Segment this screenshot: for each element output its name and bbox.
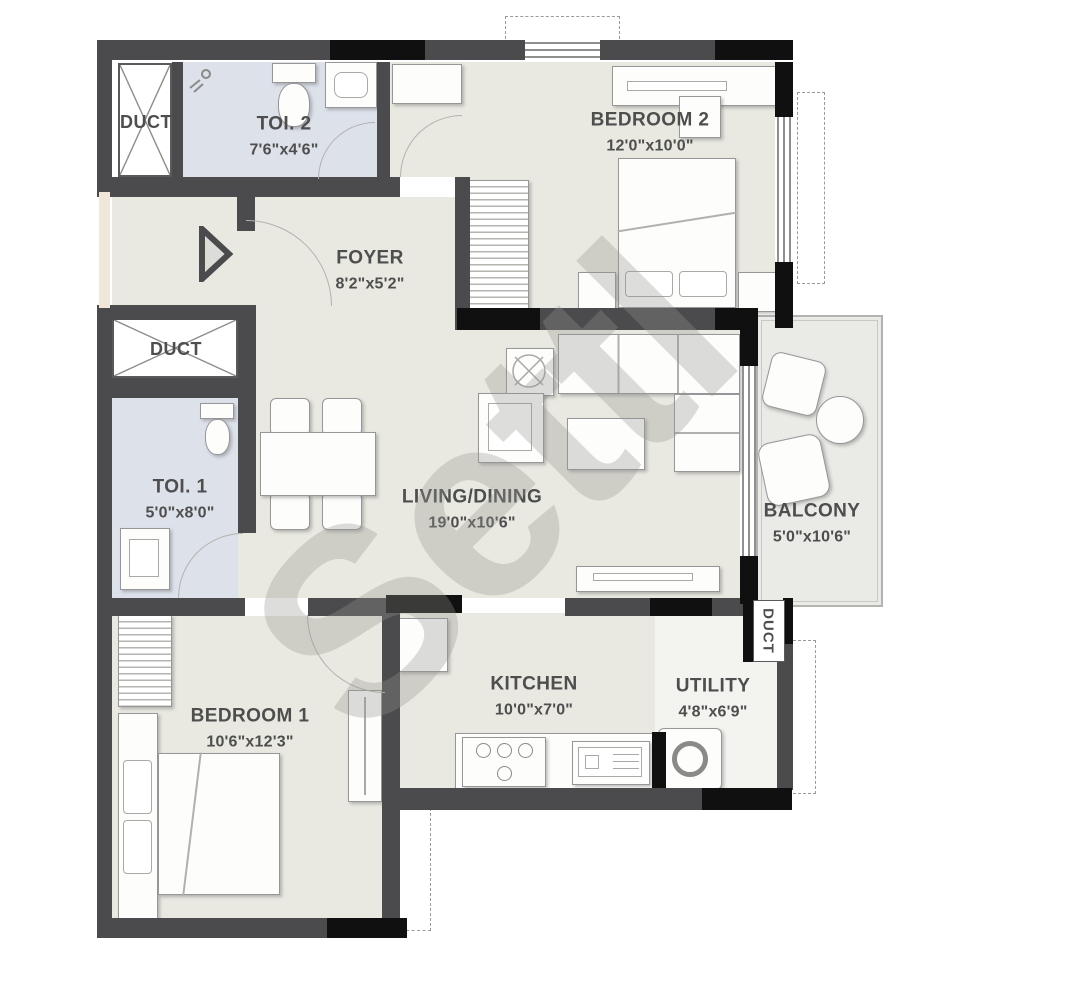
projection-dashed-box	[793, 640, 816, 794]
bedroom1-bed-head	[118, 713, 158, 919]
burner-icon	[497, 766, 512, 781]
tv-screen	[593, 573, 693, 581]
room-dims: 7'6"x4'6"	[249, 138, 318, 161]
kitchen-sink	[572, 741, 650, 785]
wall-segment	[97, 305, 112, 938]
black-wall-segment	[775, 62, 793, 117]
room-dims: 19'0"x10'6"	[402, 511, 542, 534]
bedside-table	[738, 272, 776, 312]
wall-segment	[97, 918, 327, 938]
dining-chair	[322, 492, 362, 530]
room-name: TOI. 1	[145, 474, 214, 502]
washer-drum-icon	[672, 741, 708, 777]
black-wall-segment	[715, 40, 793, 60]
blanket-fold	[618, 212, 737, 232]
wall-segment	[777, 640, 793, 790]
room-dims: 8'2"x5'2"	[335, 272, 404, 295]
bedroom1-double-bed	[158, 753, 280, 895]
black-wall-segment	[715, 308, 758, 330]
dresser-detail	[627, 81, 727, 91]
wall-segment	[382, 788, 400, 938]
toi1-label: TOI. 1 5'0"x8'0"	[145, 474, 214, 525]
toi2-label: TOI. 2 7'6"x4'6"	[249, 111, 318, 162]
black-wall-segment	[740, 556, 758, 604]
utility-label: UTILITY 4'8"x6'9"	[676, 673, 751, 724]
toilet1-cistern	[200, 403, 234, 419]
room-name: FOYER	[335, 245, 404, 273]
exterior-wall-accent	[99, 192, 110, 308]
room-dims: 5'0"x10'6"	[764, 525, 861, 548]
tv-unit	[576, 566, 720, 592]
wall-segment	[600, 40, 715, 60]
bedroom1-wardrobe	[348, 690, 382, 802]
wall-segment	[97, 177, 400, 197]
refrigerator	[398, 618, 448, 672]
wall-segment	[565, 598, 650, 616]
bedroom2-wardrobe	[467, 180, 529, 312]
wall-segment	[425, 40, 525, 60]
dining-chair	[270, 492, 310, 530]
room-dims: 4'8"x6'9"	[676, 700, 751, 723]
shower-icon	[186, 64, 216, 94]
wall-segment	[97, 40, 112, 192]
bedroom2-double-bed	[618, 158, 736, 308]
floor-plan: DUCT TOI. 2 7'6"x4'6" BEDROOM 2 12'0"x10…	[0, 0, 1080, 986]
black-wall-segment	[386, 595, 462, 613]
shower-drain	[129, 539, 159, 577]
sofa-horizontal	[558, 334, 740, 394]
room-dims: 10'6"x12'3"	[191, 730, 310, 753]
bed-pillow	[123, 820, 152, 874]
wall-segment	[308, 598, 388, 616]
balcony-round-table	[816, 396, 864, 444]
room-name: LIVING/DINING	[402, 484, 542, 512]
room-name: TOI. 2	[249, 111, 318, 139]
dining-table	[260, 432, 376, 496]
wall-segment	[540, 308, 715, 330]
wall-segment	[377, 62, 390, 177]
black-wall-segment	[330, 40, 425, 60]
bed-pillow	[679, 271, 727, 297]
wall-segment	[97, 598, 245, 616]
wall-segment	[712, 598, 743, 616]
toilet1-wc-bowl	[205, 419, 230, 455]
room-name: BALCONY	[764, 498, 861, 526]
entry-arrow-icon	[198, 226, 234, 282]
duct-frame	[743, 598, 753, 662]
wall-segment	[102, 378, 238, 398]
bedroom2-nook-dresser	[392, 64, 462, 104]
dining-chair	[322, 398, 362, 436]
fan-side-table	[506, 348, 554, 396]
armchair-cushion	[488, 403, 532, 451]
coffee-table	[567, 418, 645, 470]
dining-chair	[270, 398, 310, 436]
wall-segment	[382, 788, 702, 810]
wall-segment	[97, 305, 245, 320]
bedroom1-label: BEDROOM 1 10'6"x12'3"	[191, 703, 310, 754]
black-wall-segment	[775, 262, 793, 328]
sofa-corner	[674, 394, 740, 472]
wall-segment	[97, 40, 330, 60]
room-name: BEDROOM 2	[591, 107, 710, 135]
wall-segment	[238, 305, 256, 405]
black-wall-segment	[702, 788, 792, 810]
blanket-fold	[182, 752, 201, 895]
window	[525, 42, 600, 58]
burner-icon	[476, 743, 491, 758]
room-dims: 12'0"x10'0"	[591, 134, 710, 157]
balcony-chair	[756, 432, 832, 508]
window	[777, 117, 791, 262]
bed-pillow	[625, 271, 673, 297]
stove-hob	[462, 737, 546, 787]
sliding-window	[742, 366, 756, 556]
balcony-label: BALCONY 5'0"x10'6"	[764, 498, 861, 549]
bed-pillow	[123, 760, 152, 814]
washbasin-bowl	[334, 72, 368, 98]
armchair-square	[478, 393, 544, 463]
duct-mid-label: DUCT	[150, 336, 202, 362]
black-wall-segment	[652, 732, 666, 788]
bedside-table	[578, 272, 616, 312]
foyer-label: FOYER 8'2"x5'2"	[335, 245, 404, 296]
bedroom1-chest	[118, 615, 172, 707]
wardrobe-slider	[364, 697, 366, 795]
utility-duct-label: DUCT	[760, 608, 777, 654]
room-dims: 10'0"x7'0"	[490, 698, 577, 721]
black-wall-segment	[327, 918, 407, 938]
bedroom2-label: BEDROOM 2 12'0"x10'0"	[591, 107, 710, 158]
black-wall-segment	[740, 328, 758, 366]
toilet1-shower-tray	[120, 528, 170, 590]
burner-icon	[497, 743, 512, 758]
faucet-icon	[585, 755, 599, 769]
room-name: UTILITY	[676, 673, 751, 701]
wall-segment	[238, 398, 256, 533]
black-wall-segment	[457, 308, 540, 330]
burner-icon	[518, 743, 533, 758]
duct-top-label: DUCT	[120, 109, 172, 135]
room-dims: 5'0"x8'0"	[145, 501, 214, 524]
wall-segment	[172, 62, 183, 177]
toilet2-washbasin	[325, 62, 377, 108]
projection-dashed-box	[406, 798, 431, 931]
projection-dashed-box	[797, 92, 825, 284]
room-name: KITCHEN	[490, 671, 577, 699]
living-dining-label: LIVING/DINING 19'0"x10'6"	[402, 484, 542, 535]
room-name: BEDROOM 1	[191, 703, 310, 731]
washing-machine	[658, 728, 722, 790]
toilet2-cistern	[272, 63, 316, 83]
kitchen-label: KITCHEN 10'0"x7'0"	[490, 671, 577, 722]
black-wall-segment	[650, 598, 712, 616]
